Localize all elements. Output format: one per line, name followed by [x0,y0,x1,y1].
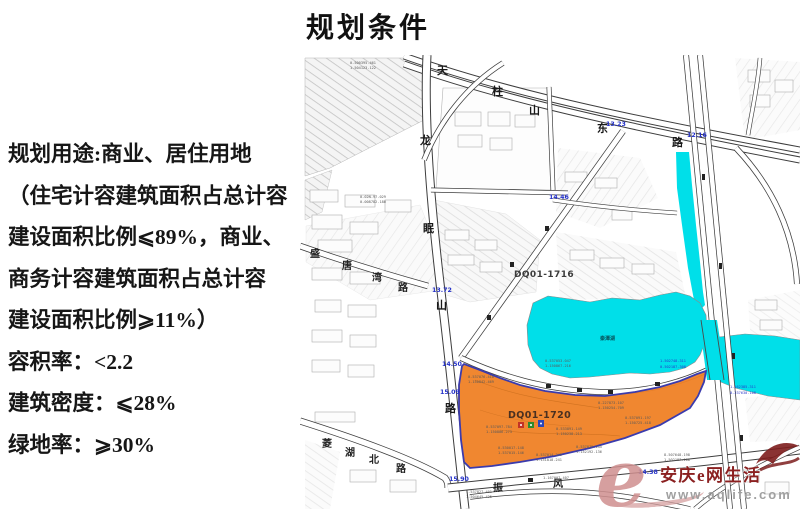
svg-text:0-237630.108: 0-237630.108 [730,391,756,395]
svg-text:1-504123.122: 1-504123.122 [350,66,376,70]
svg-text:1-150254.709: 1-150254.709 [598,406,624,410]
road-label-shan2: 山 [436,298,447,312]
svg-text:1-150725.418: 1-150725.418 [625,421,651,425]
svg-text:0-008782.180: 0-008782.180 [360,200,386,204]
svg-text:0-537097.784: 0-537097.784 [486,425,512,429]
road-label-lu2: 路 [445,401,457,415]
road-label-shan: 山 [529,103,540,117]
road-label-tian: 天 [437,64,449,77]
svg-text:1-502748.311: 1-502748.311 [660,359,686,363]
svg-text:0-537875.145: 0-537875.145 [576,445,602,449]
svg-text:1-167007.407: 1-167007.407 [543,476,569,480]
planning-conditions-slide: { "page_title": "规划条件", "left_panel": { … [0,0,800,509]
road-label-lu: 路 [672,135,684,149]
road-label-long: 龙 [419,133,431,147]
svg-text:15.90: 15.90 [449,476,470,483]
svg-text:0-530017.148: 0-530017.148 [498,446,524,450]
note-line-2: 建设面积比例⩽89%，商业、 [8,227,304,249]
lake-label: 秦潭湖 [599,335,615,342]
road-label-zhen: 振 [493,481,503,494]
road-label-zhu: 柱 [492,84,503,98]
page-title: 规划条件 [306,6,430,46]
interchange-ramp [736,148,797,284]
svg-text:1-537015.146: 1-537015.146 [498,451,524,455]
road-label-hu: 湖 [345,446,355,459]
road-label-mian: 眠 [423,222,434,235]
svg-text:0-537053.047: 0-537053.047 [545,359,571,363]
svg-text:1-152192.136: 1-152192.136 [576,450,602,454]
svg-text:1-151818.241: 1-151818.241 [536,458,562,462]
parcel-label-dq01-1720: DQ01-1720 [508,410,571,421]
svg-text:14.38: 14.38 [638,469,658,476]
svg-text:8-507648.198: 8-507648.198 [664,453,690,457]
left-panel: 规划用途:商业、居住用地 （住宅计容建筑面积占总计容 建设面积比例⩽89%，商业… [8,144,304,476]
svg-text:0-500395.461: 0-500395.461 [350,61,376,65]
svg-text:0-537091.197: 0-537091.197 [625,416,651,420]
note-line-3: 商务计容建筑面积占总计容 [8,269,304,291]
svg-text:1-150867.216: 1-150867.216 [545,364,571,368]
road-label-lu3: 路 [398,281,409,294]
svg-text:1-504645.425: 1-504645.425 [466,495,492,499]
svg-text:0-537014.245: 0-537014.245 [536,453,562,457]
road-label-tang: 唐 [342,259,352,272]
svg-text:1-150842.469: 1-150842.469 [468,380,494,384]
svg-text:14.46: 14.46 [549,194,570,201]
svg-text:13.23: 13.23 [606,121,626,128]
svg-text:0-02N-97.029: 0-02N-97.029 [360,195,386,199]
svg-text:1-537827.401: 1-537827.401 [466,490,492,494]
road-label-sheng: 盛 [310,247,320,260]
road-label-ling: 菱 [322,437,332,450]
svg-text:1-150806.273: 1-150806.273 [486,430,512,434]
svg-text:0-537076.410: 0-537076.410 [468,375,494,379]
density-line: 建筑密度：⩽28% [8,393,304,415]
planning-map: 天 柱 山 东 路 龙 眠 山 路 盛 唐 湾 路 菱 湖 北 路 振 风 DQ… [300,55,800,509]
svg-text:0-533891.149: 0-533891.149 [556,427,582,431]
svg-text:12.16: 12.16 [687,132,708,139]
svg-text:15.09: 15.09 [440,389,460,396]
svg-text:14.50: 14.50 [442,361,463,368]
svg-text:0-227873.107: 0-227873.107 [598,401,624,405]
svg-text:1-162385.311: 1-162385.311 [730,385,756,389]
note-line-1: （住宅计容建筑面积占总计容 [8,186,304,208]
svg-text:13.72: 13.72 [432,287,452,294]
svg-text:1-150238.213: 1-150238.213 [556,432,582,436]
parcel-label-dq01-1716: DQ01-1716 [514,270,574,280]
note-line-4: 建设面积比例⩾11%） [8,310,304,332]
svg-text:0-502187.308: 0-502187.308 [660,365,686,369]
green-ratio-line: 绿地率：⩾30% [8,435,304,457]
planning-use-line: 规划用途:商业、居住用地 [8,144,304,166]
road-label-wan: 湾 [372,271,382,284]
svg-text:1-502187.108: 1-502187.108 [664,458,690,462]
road-label-lu4: 路 [396,462,407,475]
road-label-bei: 北 [369,453,379,466]
far-line: 容积率：<2.2 [8,352,304,374]
